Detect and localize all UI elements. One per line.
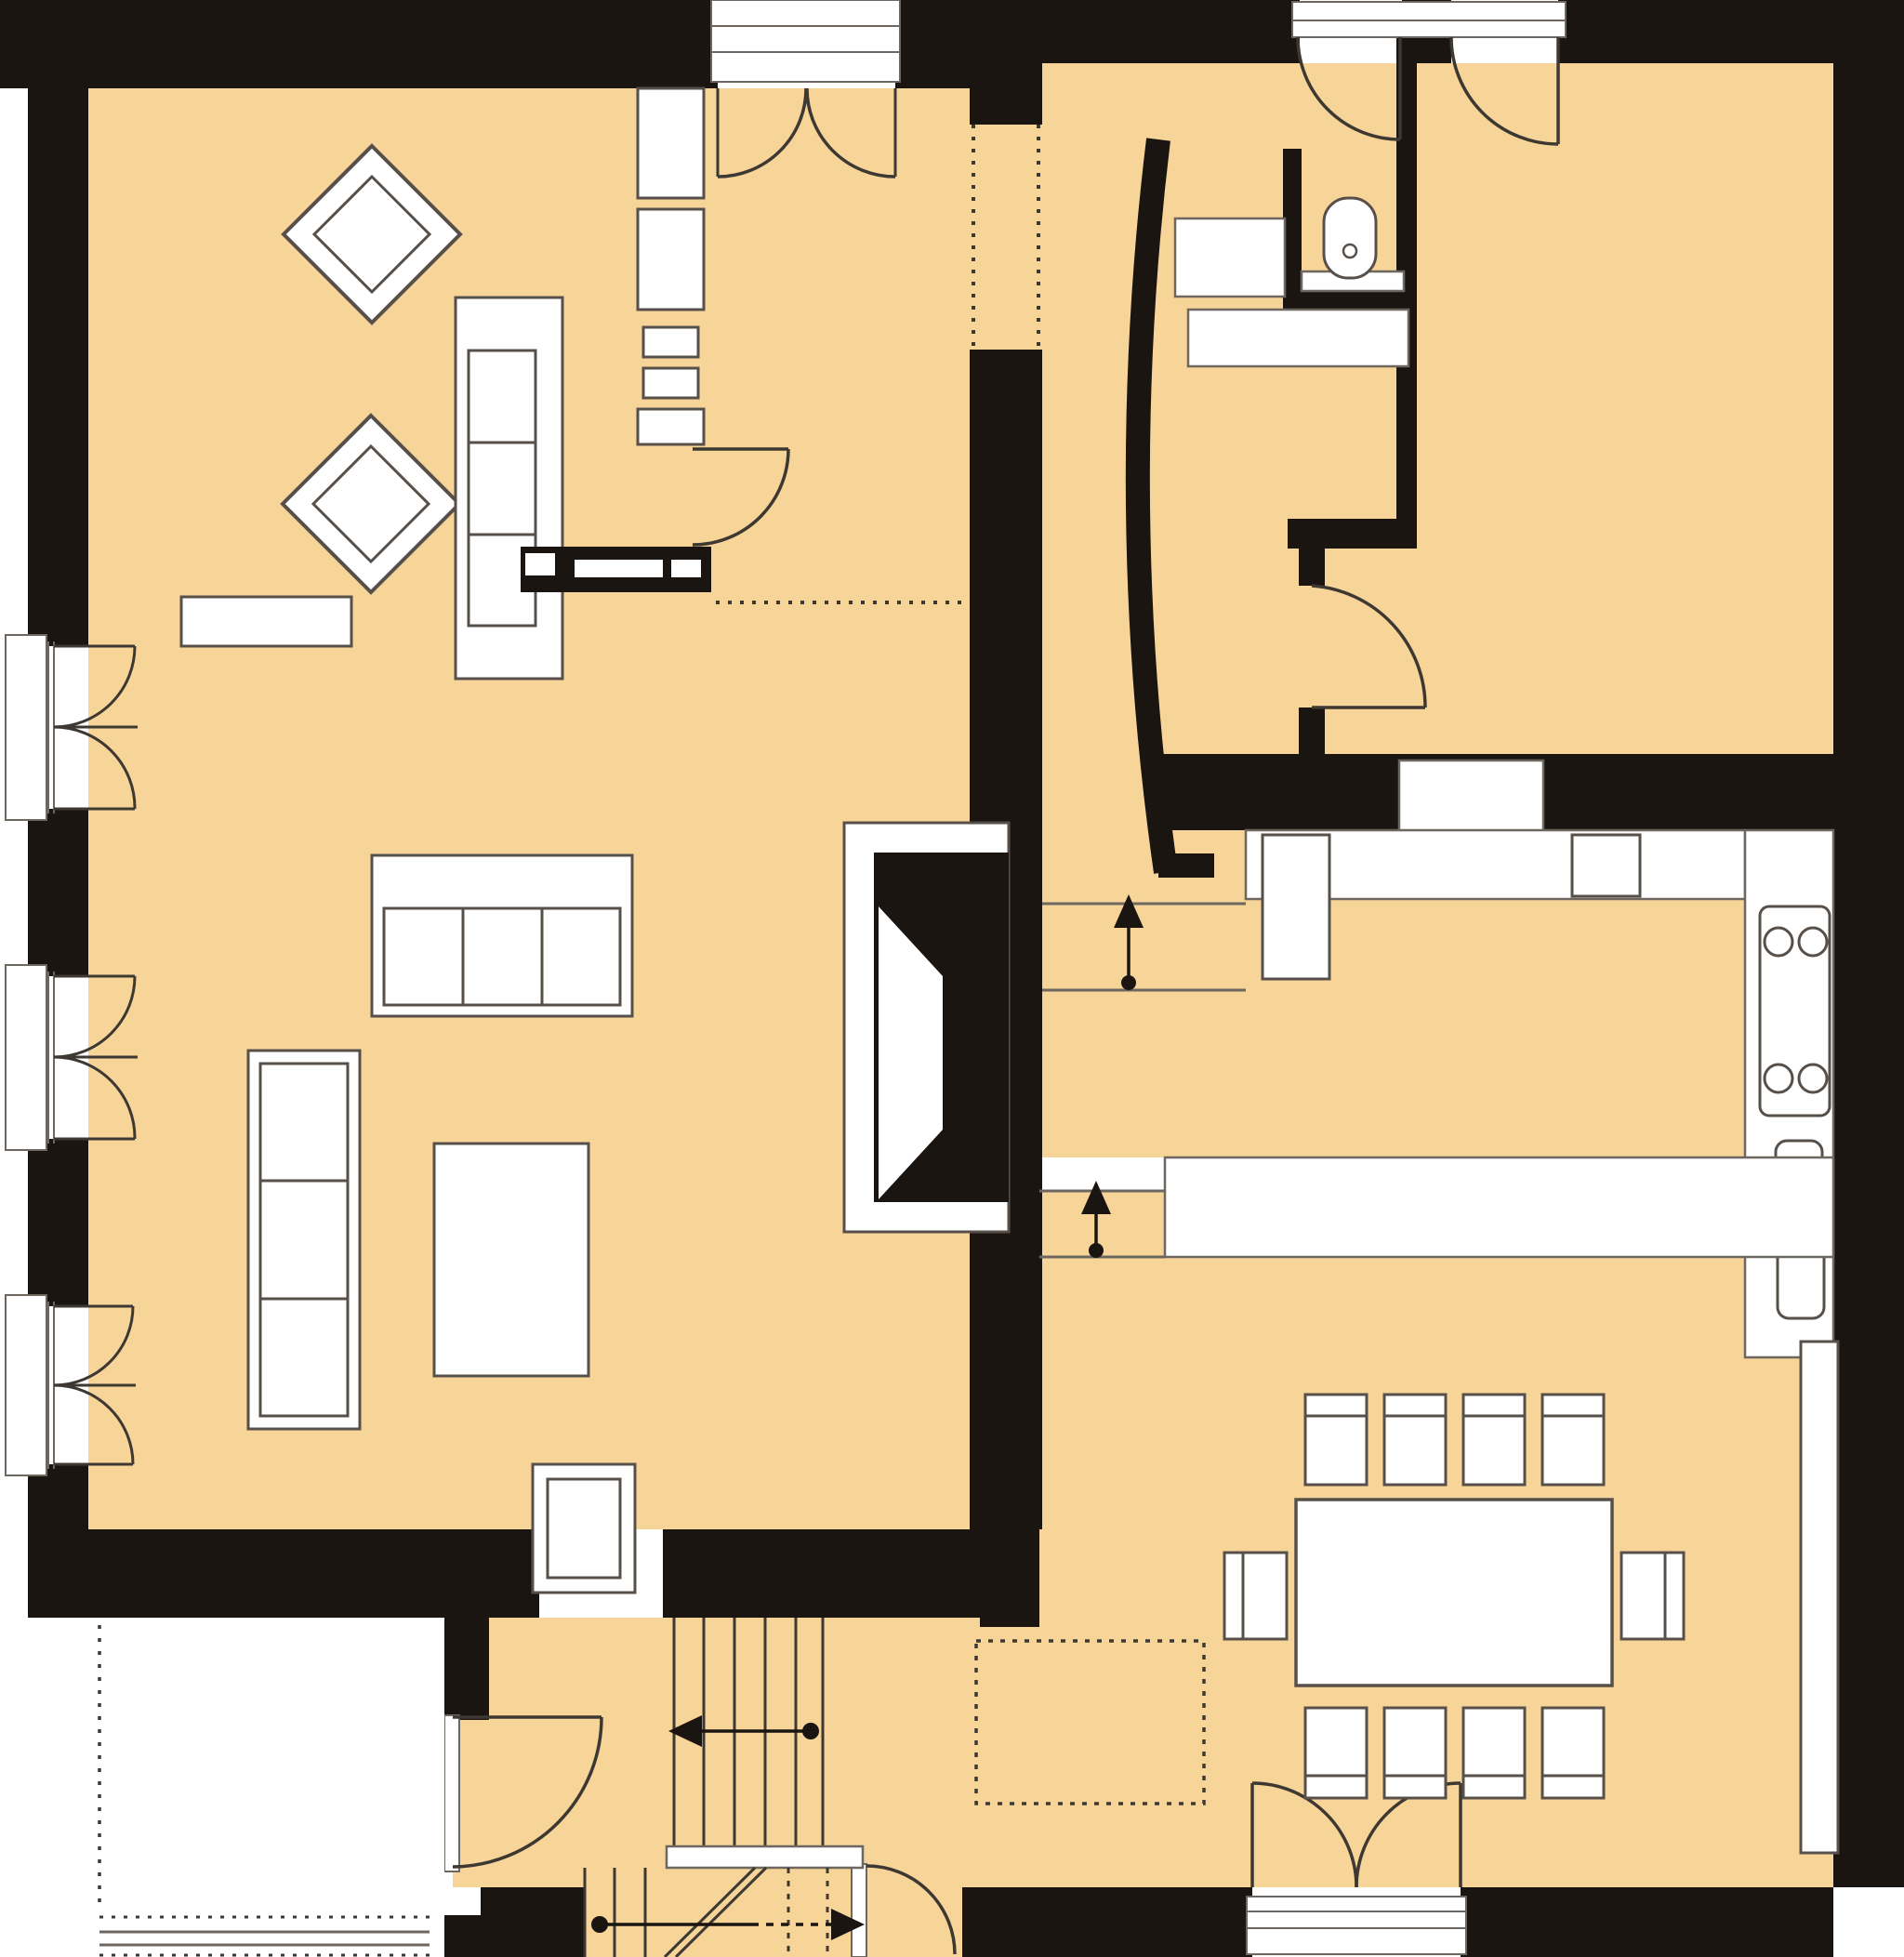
coffee-table — [434, 1144, 588, 1376]
stove-burner — [1765, 1064, 1792, 1092]
dining-chair — [1463, 1708, 1525, 1798]
wall-vest-jamb-a — [1299, 549, 1325, 586]
dining-chair — [1542, 1708, 1604, 1798]
builtin-shelf-box — [643, 368, 698, 398]
stove-burner — [1765, 928, 1792, 956]
front-door-jamb — [444, 1715, 459, 1871]
kitchen-niche — [1399, 760, 1543, 840]
stove-burner — [1799, 928, 1827, 956]
wc-bench — [1188, 310, 1408, 366]
wall-top-west — [0, 0, 718, 88]
kitchen-cabinet — [1263, 835, 1329, 979]
wall-hall-stub-top — [970, 35, 1042, 125]
builtin-shelf-box — [638, 409, 704, 444]
dining-chair — [1463, 1395, 1525, 1485]
dining-chair — [1542, 1395, 1604, 1485]
wall-vest-jamb-b — [1299, 707, 1325, 754]
floor-plan-page — [0, 0, 1904, 1957]
sofa-cushions — [260, 1064, 348, 1416]
kitchen-counter-bottom — [1165, 1157, 1833, 1257]
wall-west-1 — [28, 88, 88, 646]
media-cabinet-door — [575, 560, 663, 577]
toilet — [1324, 198, 1376, 278]
wall-top-center — [895, 0, 970, 88]
dining-chair — [1621, 1553, 1684, 1639]
builtin-shelf-box — [638, 209, 704, 310]
stove-burner — [1799, 1064, 1827, 1092]
porch-area — [28, 1618, 444, 1957]
dining-door-threshold — [1247, 1897, 1466, 1954]
wall-east — [1833, 63, 1904, 1887]
dining-chair — [1384, 1395, 1446, 1485]
toilet-flush-dot — [1343, 245, 1356, 258]
wall-living-bottom-west — [28, 1529, 539, 1618]
layer-fireplace — [844, 823, 1009, 1232]
wall-hall-mid — [970, 350, 1042, 904]
dining-chair — [1224, 1553, 1287, 1639]
window-casing — [6, 635, 46, 820]
wall-top-east-3 — [1558, 0, 1904, 63]
media-cabinet-door — [671, 560, 701, 577]
window-casing — [6, 1295, 46, 1475]
floor-plan-svg — [0, 0, 1904, 1957]
dining-chair — [1305, 1395, 1367, 1485]
washbasin-counter — [1175, 218, 1285, 297]
dining-sideboard — [1801, 1342, 1838, 1853]
wall-lobby-stub — [1288, 519, 1399, 549]
wall-wc-shelf — [1302, 289, 1406, 310]
window-casing — [6, 965, 46, 1150]
builtin-shelf-box — [643, 327, 698, 357]
dining-chair — [1384, 1708, 1446, 1798]
stair-rail — [667, 1846, 863, 1868]
wall-bottom-2 — [962, 1887, 1252, 1957]
builtin-shelf-box — [638, 88, 704, 198]
layer-porch — [28, 1618, 444, 1957]
dining-chair — [1305, 1708, 1367, 1798]
kitchen-cabinet — [1572, 835, 1640, 896]
wall-bottom-1 — [481, 1887, 585, 1957]
floor-stair-bottom — [585, 1887, 962, 1957]
media-cabinet-door — [525, 553, 555, 575]
wall-bottom-3 — [1461, 1887, 1833, 1957]
dining-table — [1296, 1500, 1612, 1686]
door-casing-hall-north — [711, 0, 900, 82]
stair-door-jamb — [852, 1864, 866, 1957]
wall-west-3 — [28, 1139, 88, 1306]
floor-hall-opening — [970, 125, 1042, 350]
sofa-cushions — [384, 908, 620, 1005]
sideboard — [181, 597, 351, 646]
wall-west-2 — [28, 809, 88, 976]
armchair-cushion — [548, 1479, 620, 1578]
